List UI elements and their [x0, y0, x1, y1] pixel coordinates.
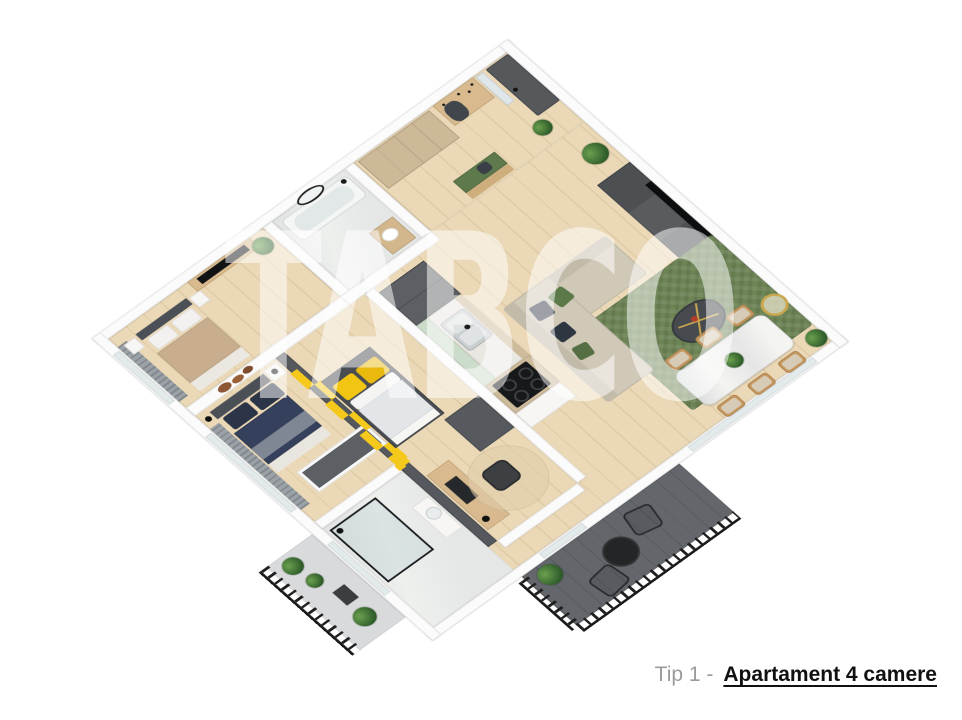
apartment-scene [91, 39, 848, 641]
caption-type-label: Tip 1 - [655, 663, 714, 686]
caption: Tip 1 -Apartament 4 camere [655, 663, 937, 687]
floorplan-3d-render: TABCO Tip 1 -Apartament 4 camere [0, 0, 962, 720]
apartment-plan [91, 39, 848, 641]
caption-apartment-name: Apartament 4 camere [723, 663, 937, 686]
